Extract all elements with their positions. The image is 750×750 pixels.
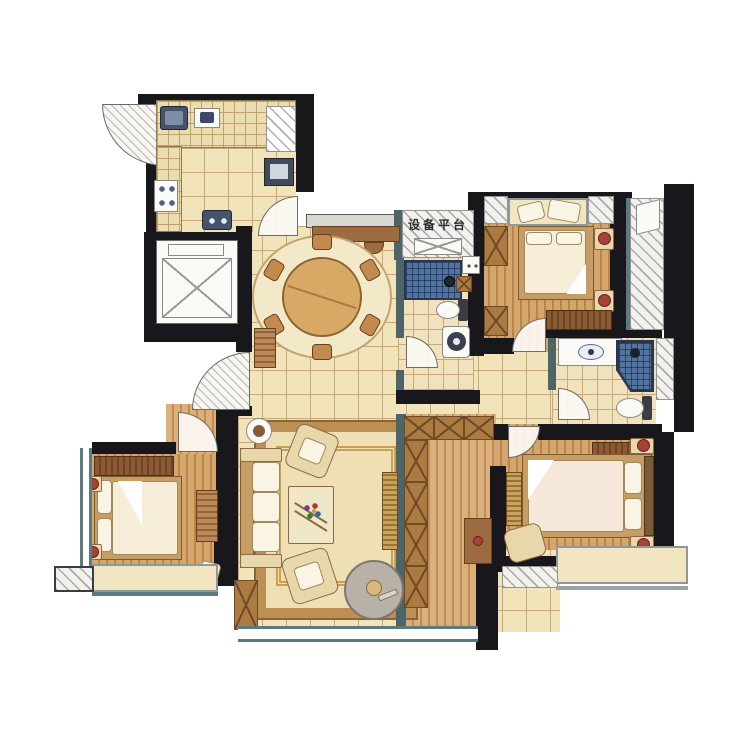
bed-pillow xyxy=(556,232,582,245)
entry-porch-door-arc xyxy=(102,104,164,166)
sofa-cushion xyxy=(252,492,280,522)
thin-wall xyxy=(548,338,556,390)
closet-cabinet-top xyxy=(464,416,494,440)
dining-chair xyxy=(312,344,332,360)
closet-cabinet-top xyxy=(404,416,434,440)
bath-shelf xyxy=(462,256,480,274)
closet-dresser-knob xyxy=(473,536,483,546)
wall xyxy=(468,338,514,354)
closet-cabinet-left xyxy=(404,566,428,608)
kitchen-double-sink-icon xyxy=(202,210,232,230)
laundry-basket-icon xyxy=(456,276,472,292)
left-bedroom-bay-window xyxy=(92,564,218,592)
wall xyxy=(144,322,238,342)
bed-pillow xyxy=(624,462,642,494)
closet-cabinet-top xyxy=(434,416,464,440)
closet-cabinet-left xyxy=(404,524,428,566)
bed-pillow xyxy=(526,232,552,245)
thin-wall xyxy=(396,256,404,338)
left-bedroom-dresser xyxy=(196,490,218,542)
round-table-sphere xyxy=(366,580,382,596)
wall xyxy=(664,184,694,342)
wardrobe-topright xyxy=(484,306,508,336)
wardrobe-topright xyxy=(484,226,508,266)
wall xyxy=(396,390,480,404)
wall xyxy=(92,442,176,454)
left-bedroom-window xyxy=(80,448,92,576)
lamp xyxy=(598,232,611,245)
open-door-glyph xyxy=(636,199,660,235)
master-window-sill xyxy=(502,566,558,588)
sofa-armrest xyxy=(240,554,282,568)
lamp xyxy=(598,294,611,307)
floor-plan: 设备平台 xyxy=(0,0,750,750)
closet-cabinet-left xyxy=(404,440,428,482)
living-corner-cabinet xyxy=(234,580,258,630)
shower-head-icon xyxy=(630,348,640,358)
tv-cabinet xyxy=(382,472,398,550)
toilet-center-bowl xyxy=(436,301,460,319)
master-bay-frame xyxy=(556,586,688,590)
platform-brace xyxy=(414,238,462,255)
kitchen-appliance-inner xyxy=(200,112,214,123)
elevator-door xyxy=(168,244,224,256)
sofa-armrest xyxy=(240,448,282,462)
bed-pillow xyxy=(624,498,642,530)
wall xyxy=(674,332,694,432)
left-bed-duvet xyxy=(112,481,178,555)
wall xyxy=(236,226,252,352)
lamp xyxy=(637,439,650,452)
wall xyxy=(296,104,314,192)
left-bay-frame xyxy=(92,592,218,596)
sofa-cushion xyxy=(252,462,280,492)
left-small-window xyxy=(54,566,94,592)
dresser-topright xyxy=(546,310,612,330)
fridge-icon xyxy=(266,106,296,152)
living-window-band xyxy=(238,626,478,642)
left-bedroom-cabinet xyxy=(94,456,174,476)
equipment-platform-label: 设备平台 xyxy=(402,219,474,231)
side-table-decor xyxy=(253,425,265,437)
vanity-basin-dot xyxy=(588,349,594,355)
stove-icon xyxy=(154,180,178,212)
kitchen-dark-cabinet-screen xyxy=(270,164,288,179)
elevator-cab xyxy=(162,258,232,318)
master-tv-cabinet xyxy=(506,472,522,526)
master-headboard xyxy=(644,456,654,536)
flue-shaft xyxy=(656,338,674,400)
washing-machine-door xyxy=(453,338,460,345)
shower-head-icon xyxy=(444,276,455,287)
bedroom-topright-window xyxy=(588,196,614,224)
flower-bouquet xyxy=(300,500,324,524)
sofa-cushion xyxy=(252,522,280,552)
kitchen-sink-basin xyxy=(165,111,183,125)
main-entry-door-arc xyxy=(192,352,250,410)
dining-chair xyxy=(312,234,332,250)
closet-cabinet-left xyxy=(404,482,428,524)
toilet-right-bowl xyxy=(616,398,644,418)
master-bay-window xyxy=(556,546,688,584)
wall xyxy=(654,432,674,550)
bedroom-topright-window xyxy=(484,196,508,224)
shoe-cabinet xyxy=(254,328,276,368)
